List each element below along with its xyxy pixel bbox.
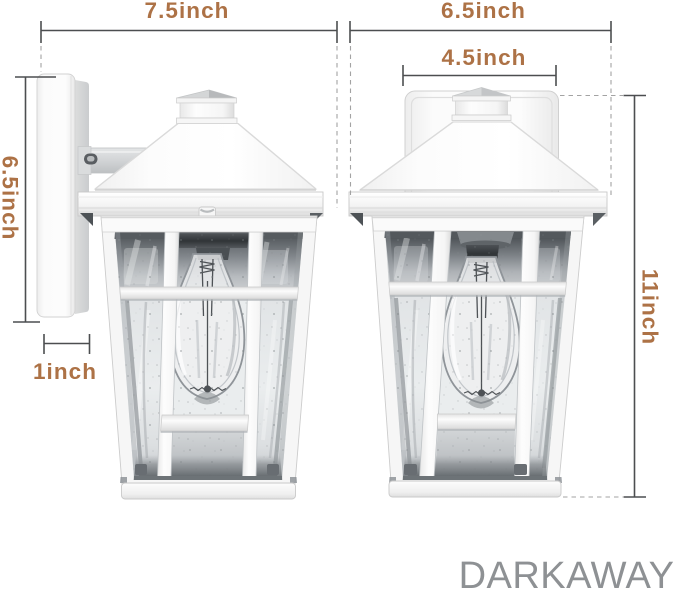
svg-text:DARKAWAY: DARKAWAY: [459, 555, 675, 594]
svg-text:4.5inch: 4.5inch: [442, 45, 527, 70]
svg-text:7.5inch: 7.5inch: [145, 0, 230, 23]
svg-text:6.5inch: 6.5inch: [0, 156, 23, 241]
svg-text:11inch: 11inch: [638, 269, 663, 345]
svg-text:6.5inch: 6.5inch: [441, 0, 526, 23]
svg-text:1inch: 1inch: [33, 359, 97, 384]
